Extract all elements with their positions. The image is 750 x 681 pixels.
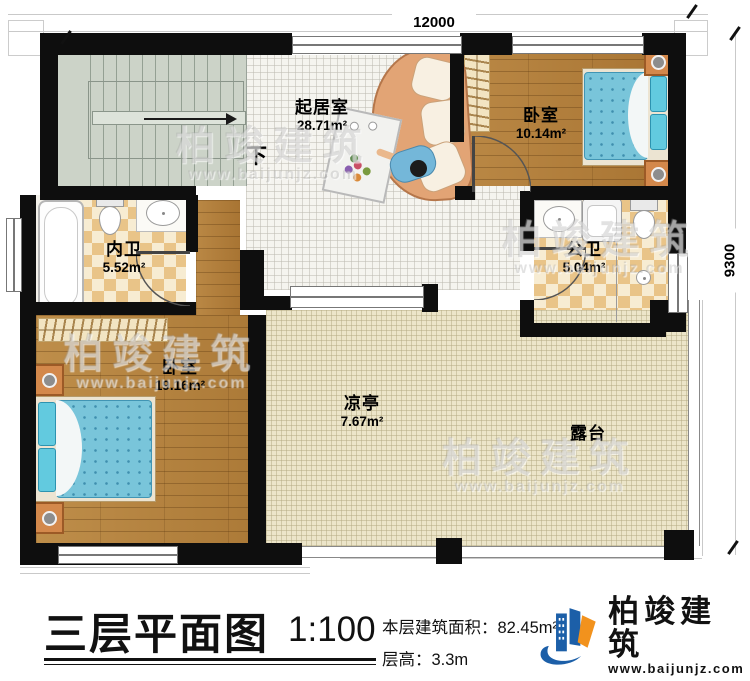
stair-direction-arrow-line <box>144 118 228 120</box>
sink-basin-public <box>543 206 575 232</box>
room-label-bedroom-top: 卧室 10.14m² <box>496 106 586 141</box>
staircase-room <box>58 55 246 186</box>
nightstand-left-2 <box>34 502 64 534</box>
stair-direction-arrow-head <box>226 113 237 125</box>
lamp-icon <box>651 167 666 182</box>
flower-bouquet <box>353 161 362 170</box>
window-bottom-bedroom <box>58 546 178 564</box>
sink-basin <box>146 200 180 226</box>
dimension-tick-topright <box>686 4 698 19</box>
lamp-icon <box>42 511 57 526</box>
wardrobe-left-bedroom <box>38 318 168 342</box>
toilet-bowl-public <box>633 210 655 239</box>
sill-line-1 <box>20 567 310 568</box>
dimension-label-height: 9300 <box>722 229 739 293</box>
terrace-column-corner <box>664 530 694 560</box>
brand-website: www.baijunjz.com <box>608 661 750 676</box>
sink-drain-public <box>558 218 561 221</box>
washing-machine-lid <box>587 205 617 237</box>
hallway-floor <box>196 200 240 315</box>
bathtub-basin <box>44 207 78 307</box>
nightstand-left-1 <box>34 364 64 396</box>
toilet-public-bath <box>628 198 658 240</box>
window-right-public-bath <box>668 253 688 313</box>
terrace-parapet-right <box>688 300 700 546</box>
window-top-bedroom <box>512 36 644 54</box>
wall-left-mid <box>20 195 36 543</box>
room-area: 5.52m² <box>88 260 160 276</box>
wall-left-top <box>40 33 58 200</box>
room-label-terrace: 露台 <box>554 424 622 444</box>
terrace-column-mid <box>436 538 462 564</box>
brand-logo-text: 柏竣建筑 www.baijunjz.com <box>608 596 750 676</box>
room-name: 凉亭 <box>320 394 404 414</box>
room-name: 内卫 <box>88 240 160 260</box>
dimension-extension-box-topleft <box>8 20 44 56</box>
room-name: 卧室 <box>496 106 586 126</box>
wall-public-bath-bottom <box>520 323 666 337</box>
toilet-inner-bath <box>94 194 124 236</box>
room-name: 公卫 <box>548 240 620 260</box>
washing-machine <box>582 198 622 242</box>
title-underline-thin <box>44 664 376 665</box>
plan-scale: 1:100 <box>288 610 376 650</box>
pillow-left-1 <box>38 402 56 446</box>
bathtub <box>38 200 84 314</box>
living-room-floor-extension <box>450 200 520 290</box>
brand-logo: 柏竣建筑 www.baijunjz.com <box>538 596 750 676</box>
wall-stair-bottom <box>40 186 196 200</box>
wall-hall-step <box>240 296 292 310</box>
room-label-bedroom-left: 卧室 19.16m² <box>130 358 230 393</box>
wall-top-b <box>460 33 512 55</box>
room-name: 露台 <box>554 424 622 444</box>
room-area: 5.04m² <box>548 260 620 276</box>
room-label-pavilion: 凉亭 7.67m² <box>320 394 404 429</box>
dimension-line-top-outer <box>8 14 708 15</box>
room-area: 10.14m² <box>496 126 586 142</box>
dimension-label-width: 12000 <box>392 14 476 31</box>
lamp-icon <box>651 55 666 70</box>
room-area: 19.16m² <box>130 378 230 394</box>
room-label-public-bath: 公卫 5.04m² <box>548 240 620 275</box>
dimension-line-right <box>735 35 736 555</box>
dimension-tick-right-bottom <box>727 540 739 555</box>
room-area: 28.71m² <box>272 118 372 134</box>
window-left-bathtub <box>6 218 22 292</box>
stair-direction-label: 下 <box>246 140 267 170</box>
title-block: 三层平面图 1:100 本层建筑面积：82.45m² 层高：3.3m 柏竣建筑 <box>0 592 750 681</box>
door-arc-top-bedroom <box>475 136 531 192</box>
terrace-outer-line-bottom <box>340 558 702 559</box>
wall-inner-bath-right <box>186 195 198 252</box>
wall-public-bath-left-lower <box>520 300 534 323</box>
shower-drain <box>636 270 651 285</box>
floor-height-value: 3.3m <box>432 651 469 669</box>
toilet-bowl <box>99 206 121 235</box>
sink-drain <box>162 212 165 215</box>
floor-plan-canvas: 12000 9300 <box>0 0 750 681</box>
wall-right-mid <box>668 191 686 253</box>
wall-right-top <box>668 33 686 191</box>
wall-bedroom-bottom <box>530 186 686 200</box>
room-label-living: 起居室 28.71m² <box>272 98 372 133</box>
room-name: 起居室 <box>272 98 372 118</box>
sill-line-2 <box>20 573 310 574</box>
brand-name: 柏竣建筑 <box>608 596 750 661</box>
dimension-line-top-inner <box>8 31 708 32</box>
window-top-living <box>292 36 462 54</box>
room-area: 7.67m² <box>320 414 404 430</box>
wall-public-bath-left-upper <box>520 191 534 251</box>
wall-bedroom-left-right <box>248 315 266 543</box>
title-underline-thick <box>44 658 376 661</box>
floor-area-label: 本层建筑面积： <box>382 619 498 637</box>
person-head <box>410 160 427 177</box>
floor-height-label: 层高： <box>382 651 432 669</box>
pillow-left-2 <box>38 448 56 492</box>
room-name: 卧室 <box>130 358 230 378</box>
wall-slidewindow-pier <box>422 284 438 312</box>
sliding-window-terrace <box>290 286 424 308</box>
vanity-public-bath <box>534 200 582 238</box>
brand-logo-icon <box>538 605 601 667</box>
floor-area-line: 本层建筑面积：82.45m² <box>382 614 558 638</box>
terrace-parapet-bottom <box>302 546 692 558</box>
shower-drain-dot <box>643 277 646 280</box>
wall-top-a <box>40 33 292 55</box>
room-label-inner-bath: 内卫 5.52m² <box>88 240 160 275</box>
pillow-top-1 <box>650 76 667 112</box>
terrace-outer-line-right <box>702 300 703 556</box>
wall-living-bedroom-divider <box>450 47 464 142</box>
pillow-top-2 <box>650 114 667 150</box>
lamp-icon <box>42 373 57 388</box>
floor-height-line: 层高：3.3m <box>382 646 468 670</box>
plan-title: 三层平面图 <box>44 600 269 662</box>
